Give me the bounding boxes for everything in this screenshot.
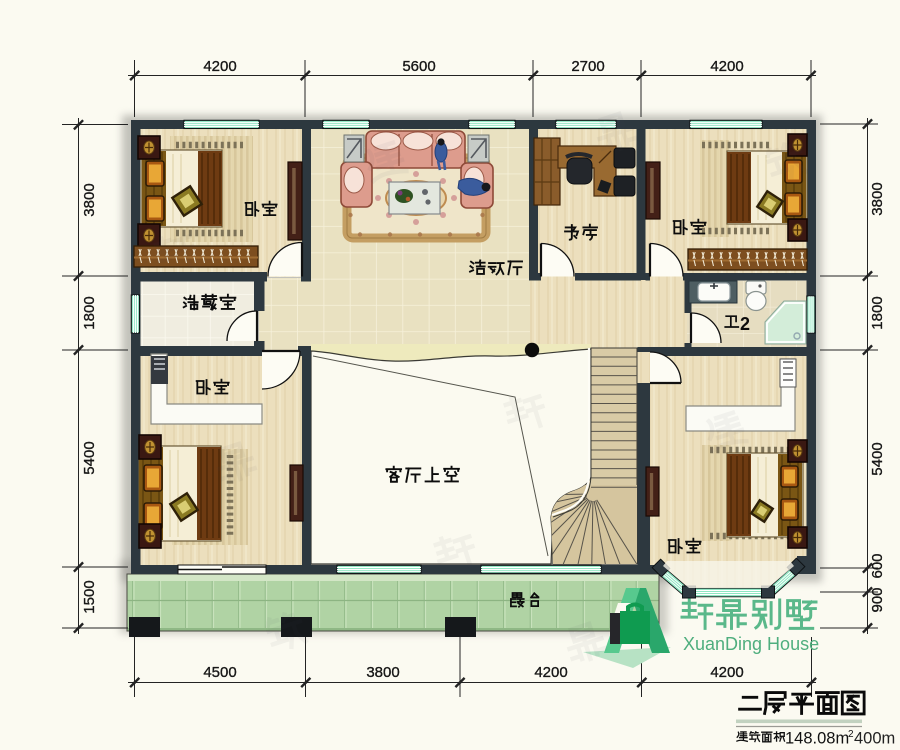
svg-text:5400: 5400 [81,441,98,474]
svg-text:400m: 400m [854,730,895,748]
svg-text:2700: 2700 [571,58,604,75]
svg-text:2: 2 [740,314,750,334]
svg-text:4500: 4500 [203,664,236,681]
svg-text:148.08m: 148.08m [785,730,849,748]
svg-text:3800: 3800 [869,182,886,215]
svg-text:1800: 1800 [81,296,98,329]
svg-text:4200: 4200 [710,664,743,681]
svg-text:4200: 4200 [710,58,743,75]
svg-text:5400: 5400 [869,442,886,475]
svg-text:900: 900 [869,587,886,612]
svg-text:4200: 4200 [534,664,567,681]
svg-text:XuanDing House: XuanDing House [683,634,819,654]
svg-text:600: 600 [869,553,886,578]
svg-text:1500: 1500 [81,580,98,613]
svg-text:5600: 5600 [402,58,435,75]
svg-text:3800: 3800 [366,664,399,681]
svg-text:3800: 3800 [81,183,98,216]
svg-text:4200: 4200 [203,58,236,75]
svg-text:1800: 1800 [869,296,886,329]
